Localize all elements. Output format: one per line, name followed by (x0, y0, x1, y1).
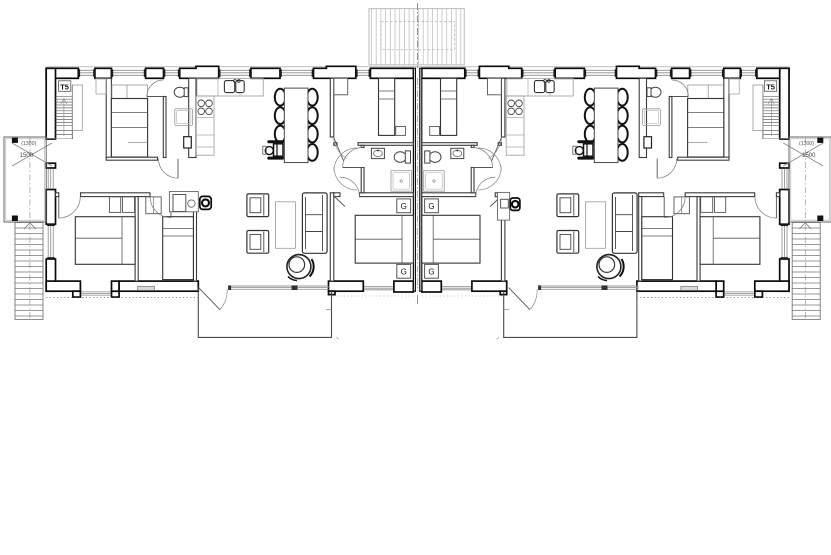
svg-text:G: G (401, 202, 407, 211)
svg-text:G: G (428, 202, 434, 211)
svg-text:T5: T5 (766, 83, 775, 92)
svg-text:1500: 1500 (20, 153, 34, 159)
svg-text:T5: T5 (60, 83, 69, 92)
svg-text:G: G (401, 267, 407, 276)
svg-text:(1300): (1300) (799, 141, 814, 147)
svg-text:(1300): (1300) (21, 141, 36, 147)
svg-text:G: G (428, 267, 434, 276)
svg-text:1500: 1500 (802, 153, 816, 159)
